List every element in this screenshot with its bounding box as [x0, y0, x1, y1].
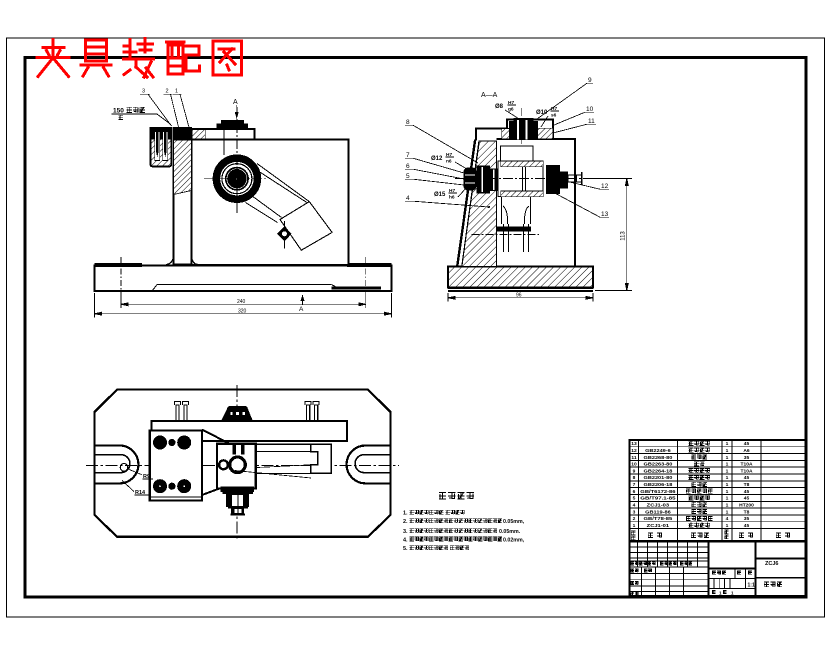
- svg-text:GB119-86: GB119-86: [645, 509, 671, 515]
- svg-text:Ø8: Ø8: [495, 104, 504, 110]
- svg-text:ZCJ6: ZCJ6: [765, 561, 778, 567]
- svg-text:T8: T8: [744, 509, 750, 515]
- svg-text:113: 113: [621, 231, 627, 241]
- svg-text:A: A: [299, 306, 304, 313]
- svg-text:1: 1: [726, 489, 729, 495]
- svg-text:1: 1: [726, 441, 729, 447]
- svg-text:7: 7: [633, 482, 636, 488]
- svg-text:Ø12: Ø12: [431, 156, 443, 162]
- svg-text:4: 4: [726, 516, 729, 522]
- svg-text:45: 45: [744, 523, 750, 529]
- svg-text:5: 5: [633, 496, 636, 502]
- svg-text:GB2206-18: GB2206-18: [644, 482, 673, 488]
- svg-text:150: 150: [113, 108, 124, 115]
- svg-text:320: 320: [238, 308, 247, 314]
- svg-text:1: 1: [726, 509, 729, 515]
- svg-text:45: 45: [744, 441, 750, 447]
- svg-text:3: 3: [142, 89, 145, 95]
- svg-text:GB2201-80: GB2201-80: [644, 475, 673, 481]
- svg-text:35: 35: [744, 516, 750, 522]
- svg-text:h6: h6: [449, 195, 455, 201]
- svg-text:T8: T8: [744, 482, 750, 488]
- svg-text:A—A: A—A: [481, 92, 498, 99]
- svg-text:2: 2: [633, 516, 636, 522]
- svg-text:35: 35: [744, 455, 750, 461]
- svg-text:A6: A6: [743, 448, 750, 454]
- svg-text:Ø10: Ø10: [536, 110, 548, 116]
- svg-text:ZCJ1-03: ZCJ1-03: [647, 503, 670, 509]
- svg-text:9: 9: [633, 468, 636, 474]
- svg-text:HT200: HT200: [739, 503, 754, 509]
- svg-text:45: 45: [744, 475, 750, 481]
- svg-text:1: 1: [726, 496, 729, 502]
- svg-text:GB/T97.1-85: GB/T97.1-85: [640, 496, 676, 502]
- svg-text:240: 240: [237, 299, 246, 305]
- svg-text:n6: n6: [446, 159, 452, 165]
- svg-text:g6: g6: [508, 107, 514, 113]
- svg-text:s6: s6: [551, 113, 557, 119]
- svg-text:1: 1: [726, 482, 729, 488]
- svg-text:5.: 5.: [403, 546, 408, 552]
- svg-text:1: 1: [726, 468, 729, 474]
- svg-text:2.: 2.: [403, 519, 408, 525]
- svg-text:1.: 1.: [403, 511, 408, 517]
- svg-text:1:1: 1:1: [748, 583, 755, 589]
- svg-text:GB2263-80: GB2263-80: [644, 462, 673, 468]
- svg-text:1: 1: [633, 523, 636, 529]
- svg-text:1: 1: [726, 523, 729, 529]
- svg-text:3: 3: [633, 509, 636, 515]
- svg-text:T10A: T10A: [741, 468, 753, 474]
- svg-text:11: 11: [631, 455, 636, 461]
- svg-text:4: 4: [633, 503, 636, 509]
- svg-text:A: A: [233, 99, 238, 106]
- svg-text:45: 45: [744, 489, 750, 495]
- svg-text:4.: 4.: [403, 537, 408, 543]
- svg-text:Ø15: Ø15: [434, 192, 446, 198]
- svg-text:8: 8: [633, 475, 636, 481]
- svg-text:GB2264-18: GB2264-18: [644, 468, 673, 474]
- svg-text:GB2268-80: GB2268-80: [644, 455, 673, 461]
- svg-text:12: 12: [631, 448, 637, 454]
- svg-text:1: 1: [726, 462, 729, 468]
- svg-text:1: 1: [726, 455, 729, 461]
- svg-text:6: 6: [633, 489, 636, 495]
- svg-text:1: 1: [726, 475, 729, 481]
- svg-text:GB2249-6: GB2249-6: [645, 448, 671, 454]
- svg-text:0.02mm,: 0.02mm,: [503, 537, 525, 543]
- svg-text:1: 1: [726, 448, 729, 454]
- svg-text:GB/T78-85: GB/T78-85: [644, 516, 673, 522]
- svg-text:0.05mm,: 0.05mm,: [503, 519, 525, 525]
- svg-text:0.05mm.: 0.05mm.: [499, 529, 521, 535]
- svg-text:45: 45: [744, 496, 750, 502]
- svg-text:10: 10: [631, 462, 637, 468]
- svg-text:3.: 3.: [403, 529, 408, 535]
- svg-text:2: 2: [166, 89, 169, 95]
- svg-text:13: 13: [631, 441, 637, 447]
- svg-text:T10A: T10A: [741, 462, 753, 468]
- svg-text:1: 1: [175, 89, 178, 95]
- svg-text:1: 1: [726, 503, 729, 509]
- svg-text:96: 96: [516, 293, 522, 299]
- svg-text:ZCJ1-01: ZCJ1-01: [647, 523, 670, 529]
- svg-text:GB/T6172-86: GB/T6172-86: [640, 489, 676, 495]
